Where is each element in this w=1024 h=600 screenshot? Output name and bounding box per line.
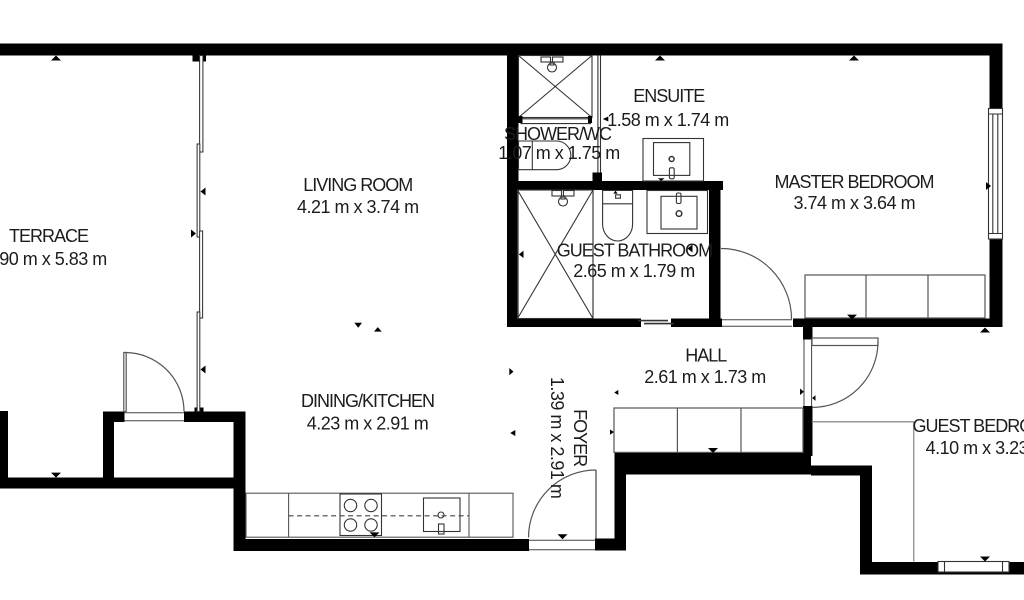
svg-text:ENSUITE: ENSUITE [633, 86, 705, 106]
svg-text:FOYER: FOYER [570, 409, 590, 467]
svg-text:2.61 m x 1.73 m: 2.61 m x 1.73 m [644, 367, 766, 387]
svg-text:MASTER BEDROOM: MASTER BEDROOM [774, 172, 933, 192]
svg-text:3.74 m x 3.64 m: 3.74 m x 3.64 m [794, 193, 916, 213]
svg-text:1.39 m x 2.91 m: 1.39 m x 2.91 m [547, 377, 567, 499]
svg-text:1.07 m x 1.75 m: 1.07 m x 1.75 m [498, 143, 620, 163]
svg-text:4.23 m x 2.91 m: 4.23 m x 2.91 m [307, 414, 429, 434]
svg-text:2.90 m x 5.83 m: 2.90 m x 5.83 m [0, 249, 107, 269]
svg-text:GUEST BEDROOM: GUEST BEDROOM [913, 416, 1024, 436]
svg-text:4.10 m x 3.23 m: 4.10 m x 3.23 m [926, 438, 1024, 458]
svg-text:1.58 m x 1.74 m: 1.58 m x 1.74 m [607, 110, 729, 130]
svg-text:HALL: HALL [685, 346, 727, 366]
svg-text:LIVING ROOM: LIVING ROOM [303, 175, 412, 195]
svg-text:SHOWER/WC: SHOWER/WC [504, 124, 612, 144]
svg-text:TERRACE: TERRACE [9, 226, 89, 246]
svg-text:2.65 m x 1.79 m: 2.65 m x 1.79 m [573, 261, 695, 281]
svg-text:4.21 m x 3.74 m: 4.21 m x 3.74 m [297, 197, 419, 217]
svg-text:DINING/KITCHEN: DINING/KITCHEN [301, 391, 434, 411]
svg-text:GUEST BATHROOM: GUEST BATHROOM [557, 240, 712, 260]
